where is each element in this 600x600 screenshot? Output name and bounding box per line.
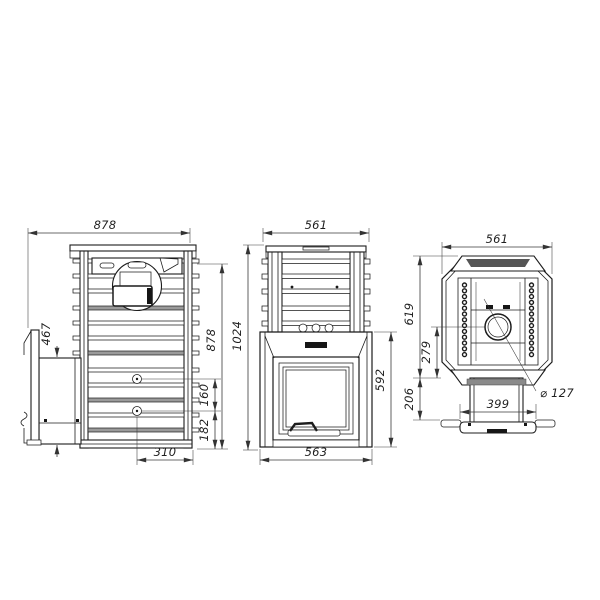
dim-label-side-310: 310 (154, 445, 177, 459)
front-view: 561 1024 592 563 (230, 218, 397, 465)
side-fuel-tunnel (21, 330, 81, 445)
top-view: 561 619 279 206 399 (402, 232, 574, 433)
dim-label-top-399: 399 (487, 397, 510, 411)
top-flue-outlet (485, 314, 511, 340)
front-view-body (260, 246, 372, 447)
dim-front-overall-height: 1024 (230, 245, 264, 450)
dim-top-flue-to-front: 279 (419, 327, 437, 378)
top-door-hinge-right (535, 420, 555, 427)
technical-drawing-page: 878 878 160 182 310 (0, 0, 600, 600)
dim-label-top-flue-diameter: ⌀ 127 (540, 386, 574, 400)
dim-front-top-width: 561 (263, 218, 369, 242)
dim-label-top-206: 206 (402, 388, 416, 411)
side-view: 878 878 160 182 310 (21, 218, 228, 465)
top-back-shield-band (466, 259, 530, 267)
dim-label-top-279: 279 (419, 341, 433, 364)
dim-label-front-1024: 1024 (230, 321, 244, 351)
dim-label-top-561: 561 (486, 232, 509, 246)
dim-front-base-width: 563 (260, 445, 372, 465)
dim-label-side-878-right: 878 (204, 329, 218, 352)
front-stones (299, 324, 333, 332)
dim-side-mount-to-base: 182 (197, 411, 215, 449)
dim-label-side-467: 467 (39, 322, 53, 345)
dim-top-tunnel-protrusion: 206 (402, 378, 440, 420)
dim-label-side-160: 160 (197, 384, 211, 407)
side-mount-screws (133, 375, 142, 416)
dim-label-front-563: 563 (305, 445, 328, 459)
stove-drawing-canvas: 878 878 160 182 310 (0, 0, 600, 600)
dim-label-front-592: 592 (373, 369, 387, 392)
front-firebox (260, 332, 372, 447)
dim-label-side-878-top: 878 (94, 218, 117, 232)
dim-label-front-561: 561 (305, 218, 328, 232)
top-door-hinge-left (441, 420, 461, 427)
side-view-body (21, 245, 199, 448)
dim-label-top-619: 619 (402, 303, 416, 326)
side-fire-chamber (92, 258, 182, 311)
dim-front-firebox-height: 592 (373, 332, 397, 447)
dim-label-side-182: 182 (197, 419, 211, 442)
